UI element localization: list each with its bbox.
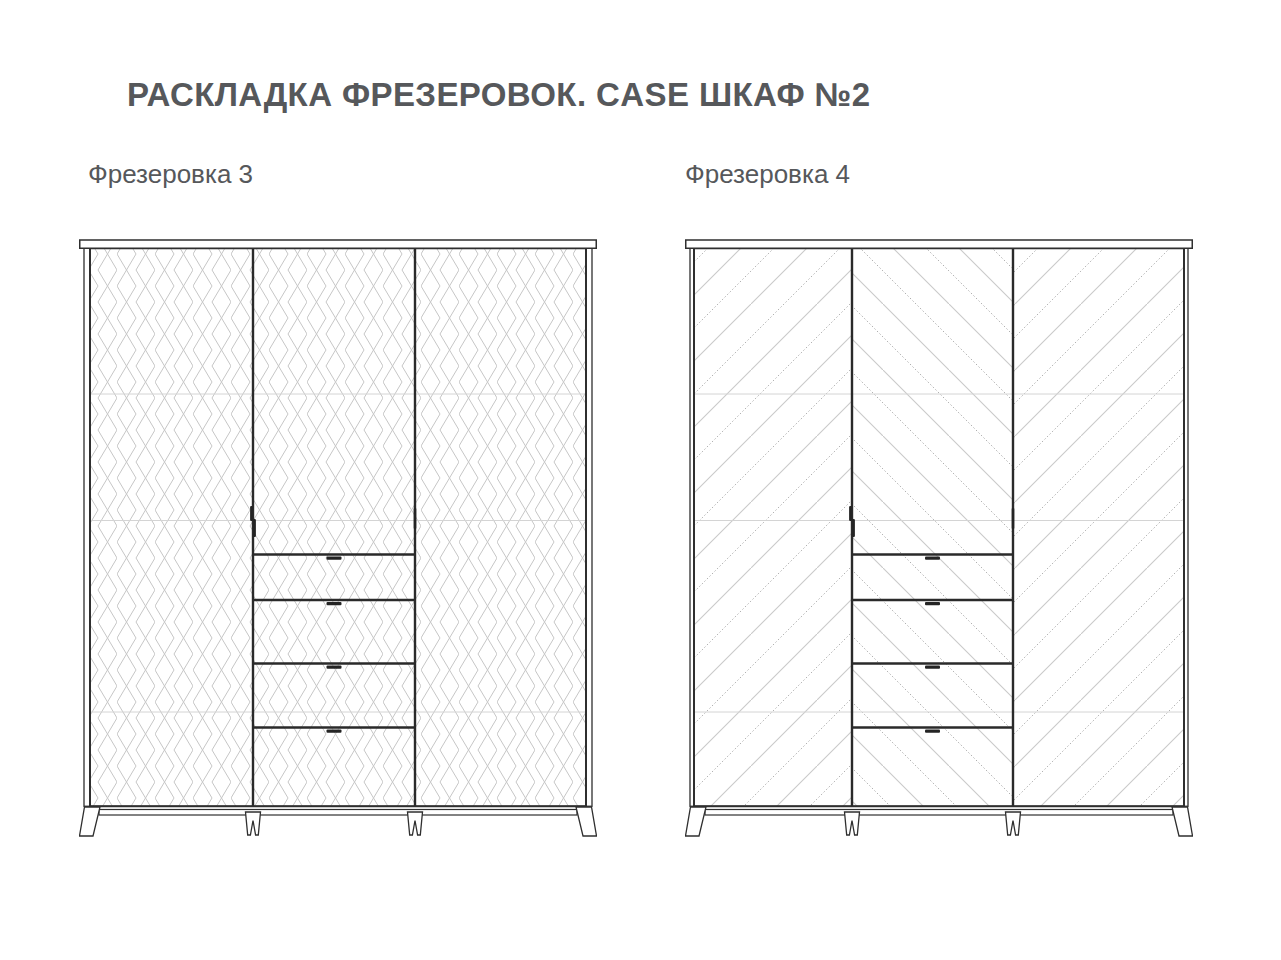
leg-front-right <box>1172 807 1193 836</box>
base-rail <box>705 810 1173 816</box>
leg-middle-left <box>845 812 860 835</box>
leg-front-right <box>576 807 597 836</box>
wardrobe-drawing-milling-4 <box>685 238 1193 838</box>
page: РАСКЛАДКА ФРЕЗЕРОВОК. CASE ШКАФ №2 Фрезе… <box>0 0 1281 960</box>
figure-label-milling-3: Фрезеровка 3 <box>88 159 253 190</box>
cornice <box>686 240 1193 248</box>
leg-front-left <box>686 807 707 836</box>
leg-front-left <box>80 807 101 836</box>
wardrobe-drawing-milling-3 <box>79 238 597 838</box>
right-door-pattern <box>1013 248 1184 806</box>
middle-column-pattern <box>852 248 1013 806</box>
cornice <box>80 240 597 248</box>
leg-middle-right <box>408 812 423 835</box>
figure-label-milling-4: Фрезеровка 4 <box>685 159 850 190</box>
door-front-pattern <box>90 248 586 806</box>
leg-middle-right <box>1006 812 1021 835</box>
leg-middle-left <box>246 812 261 835</box>
base-rail <box>99 810 577 816</box>
left-door-pattern <box>694 248 852 806</box>
page-title: РАСКЛАДКА ФРЕЗЕРОВОК. CASE ШКАФ №2 <box>127 76 870 114</box>
